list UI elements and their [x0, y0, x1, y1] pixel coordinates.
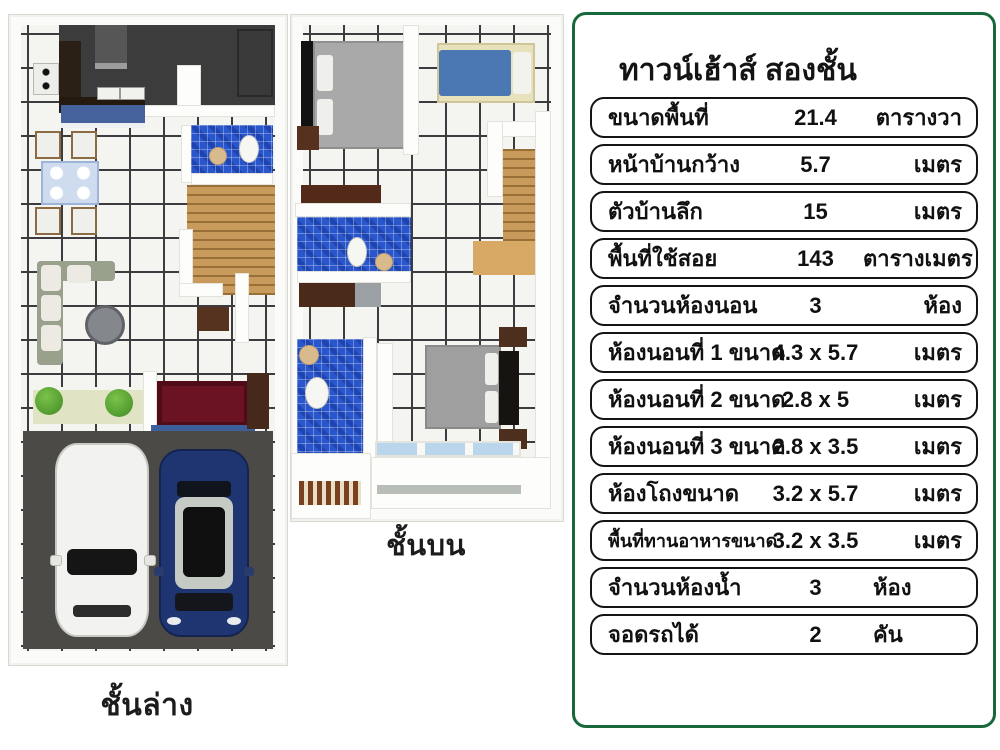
spec-row-value: 2.8 x 5: [768, 387, 863, 413]
bathroom1-sill: [297, 271, 411, 283]
dining-chair: [35, 131, 61, 159]
ground-floor-caption: ชั้นล่าง: [8, 682, 286, 729]
spec-row-unit: เมตร: [863, 194, 962, 229]
pillow: [317, 99, 333, 135]
entry-cabinet: [247, 373, 269, 429]
spec-row-value: 21.4: [768, 105, 863, 131]
spec-row-label: ห้องนอนที่ 3 ขนาด: [608, 429, 768, 464]
closet: [377, 343, 393, 447]
spec-row-unit: เมตร: [863, 429, 962, 464]
wash-basin: [299, 345, 319, 365]
bed3: [425, 345, 501, 429]
garden-bush: [105, 389, 133, 417]
blue-car-windshield: [175, 593, 233, 611]
spec-row-unit: เมตร: [863, 335, 962, 370]
nightstand: [499, 327, 527, 347]
white-car-rear-glass: [73, 605, 131, 617]
ground-floor-plan: [8, 14, 288, 666]
stairwell-wall-side: [487, 121, 503, 197]
living-wall-stub: [235, 273, 249, 343]
front-wall: [371, 457, 551, 509]
spec-row-label: จำนวนห้องนอน: [608, 288, 768, 323]
spec-row-label: จำนวนห้องน้ำ: [608, 570, 768, 605]
upper-floor-caption: ชั้นบน: [290, 522, 562, 568]
spec-row-value: 15: [768, 199, 863, 225]
spec-row: พื้นที่ทานอาหารขนาด3.2 x 3.5เมตร: [590, 520, 978, 561]
spec-row-unit: ห้อง: [863, 288, 962, 323]
hall-wall: [295, 203, 411, 217]
spec-row-value: 4.3 x 5.7: [768, 340, 863, 366]
spec-row-label: จอดรถได้: [608, 617, 768, 652]
spec-row-unit: ห้อง: [863, 570, 962, 605]
toilet: [305, 377, 329, 409]
spec-row-label: ห้องนอนที่ 1 ขนาด: [608, 335, 768, 370]
balcony-slats: [299, 481, 361, 505]
white-car-mirror: [144, 555, 156, 566]
spec-row: ขนาดพื้นที่21.4ตารางวา: [590, 97, 978, 138]
stove: [33, 63, 59, 95]
bed3-headboard: [499, 351, 519, 425]
right-outer-wall: [535, 111, 551, 477]
spec-row-value: 2.8 x 3.5: [768, 434, 863, 460]
spec-row-value: 3.2 x 5.7: [768, 481, 863, 507]
side-table: [197, 307, 229, 331]
spec-panel: ทาวน์เฮ้าส์ สองชั้น ขนาดพื้นที่21.4ตาราง…: [572, 12, 996, 728]
blue-car-rear-glass: [177, 481, 231, 497]
spec-row-value: 5.7: [768, 152, 863, 178]
wash-basin: [375, 253, 393, 271]
bed2-duvet: [439, 50, 511, 96]
washer: [355, 283, 381, 307]
bedroom-divider-wall: [403, 25, 419, 155]
bed1-bench: [297, 126, 319, 150]
spec-row-value: 2: [768, 622, 863, 648]
spec-row-label: หน้าบ้านกว้าง: [608, 147, 768, 182]
pillow: [317, 55, 333, 91]
spec-row-unit: คัน: [863, 617, 962, 652]
spec-row-label: ห้องโถงขนาด: [608, 476, 768, 511]
dining-table: [41, 161, 99, 205]
red-bench: [157, 381, 249, 427]
sofa-cushion: [41, 295, 61, 321]
white-car-windshield: [67, 549, 137, 575]
toilet: [347, 237, 367, 267]
cabinet-doors: [97, 87, 145, 100]
spec-row: หน้าบ้านกว้าง5.7เมตร: [590, 144, 978, 185]
dining-chair: [35, 207, 61, 235]
white-car: [55, 443, 149, 637]
breakfast-counter: [61, 105, 145, 128]
ground-staircase: [187, 185, 275, 295]
spec-row-unit: เมตร: [863, 476, 962, 511]
upper-floor-plan: [290, 14, 564, 522]
window-strip: [375, 441, 521, 457]
bed1: [313, 41, 405, 149]
kitchen-divider-wall: [127, 105, 275, 117]
spec-row: ห้องนอนที่ 3 ขนาด2.8 x 3.5เมตร: [590, 426, 978, 467]
spec-row-label: ขนาดพื้นที่: [608, 100, 768, 135]
spec-row: ตัวบ้านลึก15เมตร: [590, 191, 978, 232]
spec-row: พื้นที่ใช้สอย143ตารางเมตร: [590, 238, 978, 279]
spec-row-value: 3: [768, 293, 863, 319]
spec-row: ห้องนอนที่ 1 ขนาด4.3 x 5.7เมตร: [590, 332, 978, 373]
spec-row-unit: ตารางเมตร: [863, 241, 973, 276]
spec-row-label: พื้นที่ใช้สอย: [608, 241, 768, 276]
spec-row-value: 3.2 x 3.5: [768, 528, 863, 554]
upper-staircase: [503, 149, 537, 245]
spec-row-label: พื้นที่ทานอาหารขนาด: [608, 526, 768, 555]
blue-car-mirror: [154, 567, 164, 576]
spec-rows: ขนาดพื้นที่21.4ตารางวาหน้าบ้านกว้าง5.7เม…: [590, 97, 978, 655]
spec-row-unit: เมตร: [863, 523, 962, 558]
dining-chair: [71, 131, 97, 159]
refrigerator: [237, 29, 273, 97]
bathroom-sill: [191, 173, 273, 185]
blue-car-headlight: [167, 617, 181, 625]
pillow: [513, 52, 531, 94]
blue-car-mirror: [244, 567, 254, 576]
coffee-table: [85, 305, 125, 345]
toilet: [239, 135, 259, 163]
spec-title: ทาวน์เฮ้าส์ สองชั้น: [619, 47, 857, 94]
pillow: [485, 353, 498, 385]
blue-car: [159, 449, 249, 637]
spec-row: จำนวนห้องน้ำ3ห้อง: [590, 567, 978, 608]
bed2-frame: [437, 43, 535, 103]
pillow: [485, 391, 498, 423]
spec-row-value: 143: [768, 246, 863, 272]
sofa-cushion: [41, 325, 61, 351]
spec-row-unit: เมตร: [863, 382, 962, 417]
range-hood: [95, 25, 127, 69]
blue-car-headlight: [227, 617, 241, 625]
sofa-cushion: [41, 265, 61, 291]
white-car-mirror: [50, 555, 62, 566]
spec-row: ห้องนอนที่ 2 ขนาด2.8 x 5เมตร: [590, 379, 978, 420]
spec-row: จอดรถได้2คัน: [590, 614, 978, 655]
front-ledge: [377, 485, 521, 494]
blue-car-sunroof: [183, 507, 225, 577]
spec-row-unit: เมตร: [863, 147, 962, 182]
sofa-cushion: [67, 265, 91, 283]
spec-row-label: ห้องนอนที่ 2 ขนาด: [608, 382, 768, 417]
wash-basin: [209, 147, 227, 165]
spec-row: ห้องโถงขนาด3.2 x 5.7เมตร: [590, 473, 978, 514]
spec-row-label: ตัวบ้านลึก: [608, 194, 768, 229]
spec-row: จำนวนห้องนอน3ห้อง: [590, 285, 978, 326]
dining-chair: [71, 207, 97, 235]
stair-landing: [473, 241, 537, 275]
spec-row-unit: ตารางวา: [863, 100, 962, 135]
garden-bush: [35, 387, 63, 415]
stair-wall-cap: [179, 283, 223, 297]
spec-row-value: 3: [768, 575, 863, 601]
